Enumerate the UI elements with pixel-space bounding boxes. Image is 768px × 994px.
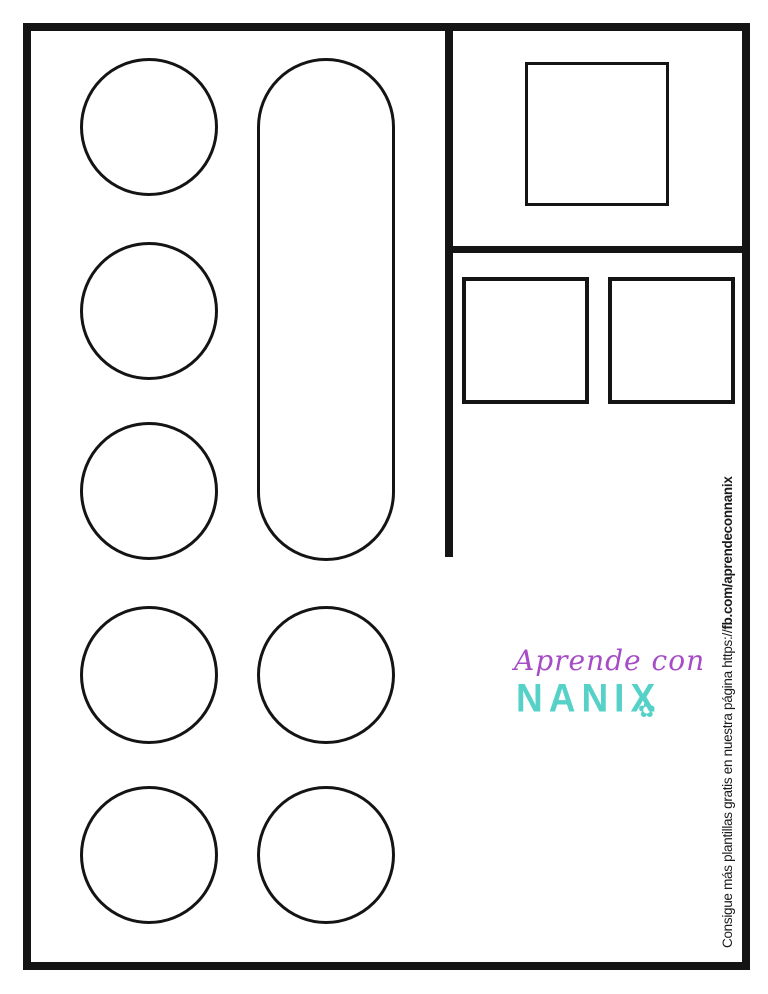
logo-text-aprende-con: Aprende con [514,644,705,677]
nanix-logo: Aprende con NANIX ✿ [505,640,680,740]
circle-cutout-1 [80,58,218,196]
circle-cutout-6 [257,606,395,744]
circle-cutout-3 [80,422,218,560]
square-cutout-right [608,277,735,404]
circle-cutout-2 [80,242,218,380]
circle-cutout-7 [257,786,395,924]
vertical-divider [445,23,453,557]
footer-credit-text: Consigue más plantillas gratis en nuestr… [716,435,739,948]
capsule-cutout [257,58,395,561]
square-cutout-left [462,277,589,404]
printable-template-page: Aprende con NANIX ✿ Consigue más plantil… [0,0,768,994]
flower-icon: ✿ [638,700,656,721]
credit-text-url: fb.com/aprendeconnanix [720,476,735,629]
horizontal-divider [445,246,750,253]
square-cutout-large [525,62,669,206]
circle-cutout-5 [80,786,218,924]
credit-text-regular: Consigue más plantillas gratis en nuestr… [720,630,735,948]
circle-cutout-4 [80,606,218,744]
